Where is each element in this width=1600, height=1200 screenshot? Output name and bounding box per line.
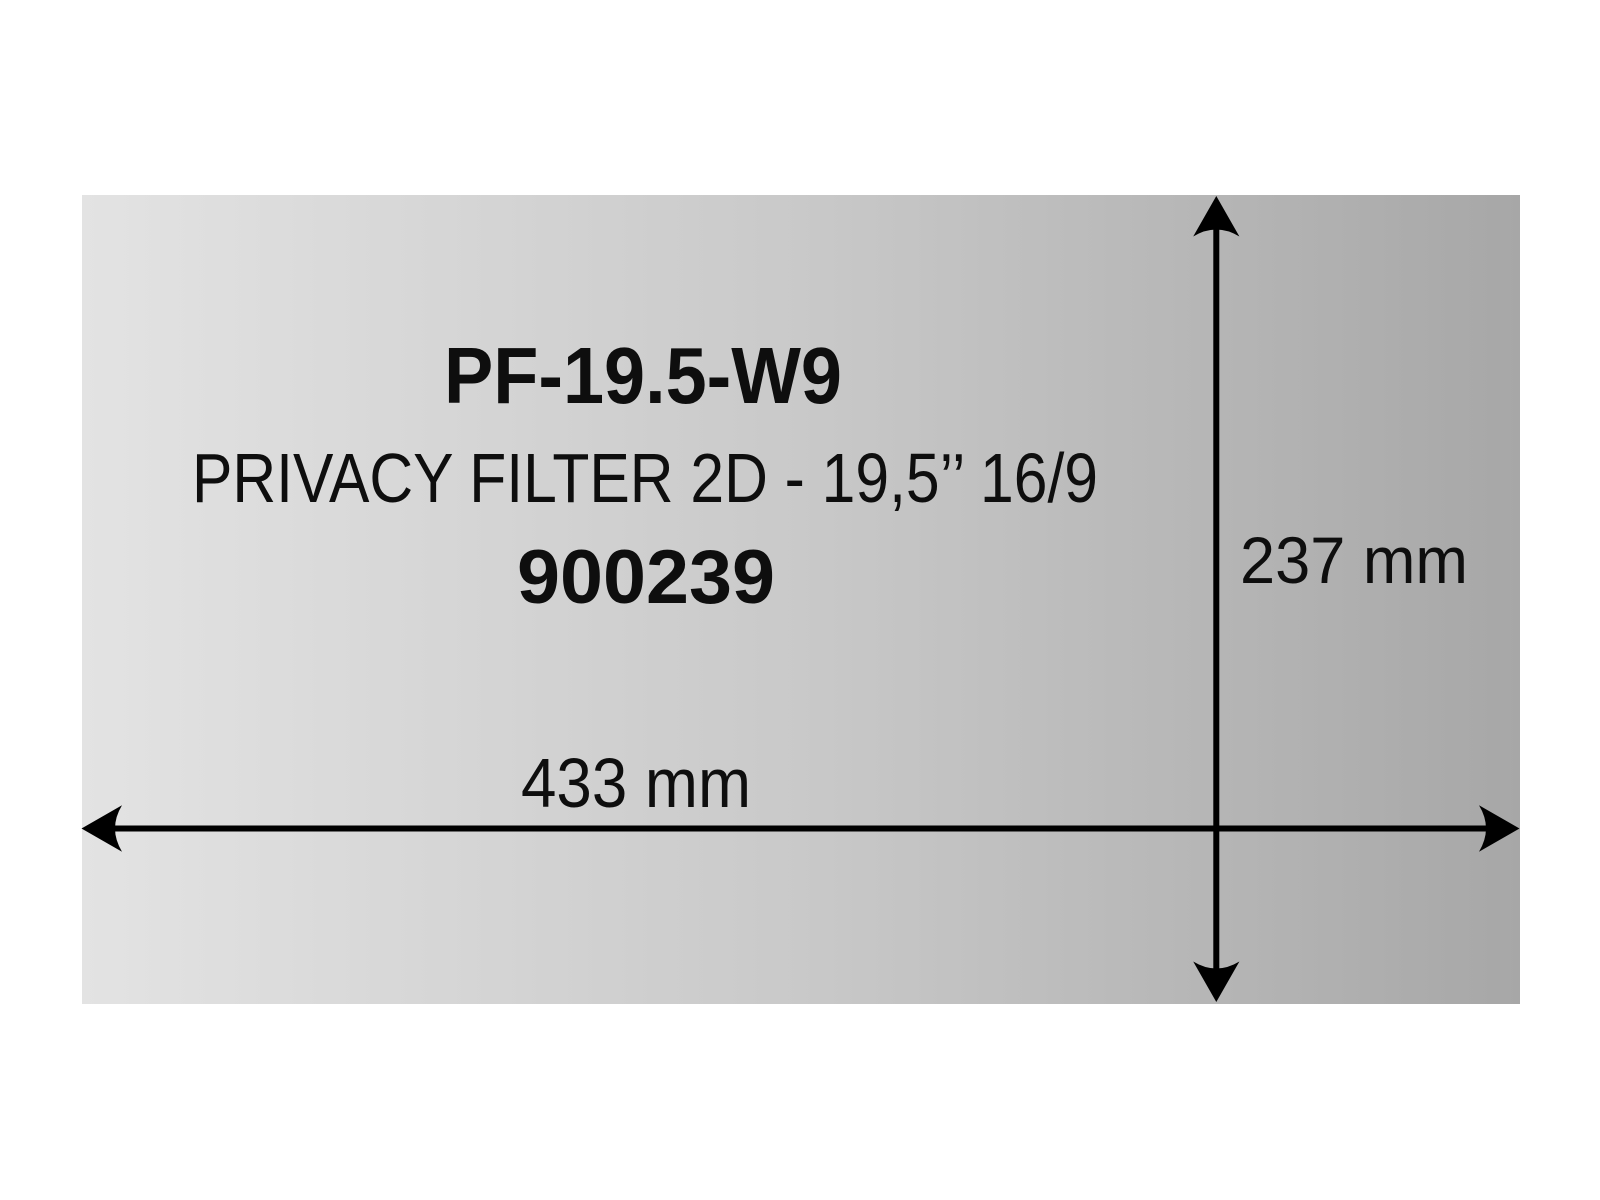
svg-text:237 mm: 237 mm (1240, 523, 1468, 597)
svg-text:433 mm: 433 mm (521, 744, 751, 822)
svg-text:PF-19.5-W9: PF-19.5-W9 (444, 331, 842, 420)
svg-text:PRIVACY FILTER 2D - 19,5’’ 16/: PRIVACY FILTER 2D - 19,5’’ 16/9 (192, 439, 1098, 517)
svg-text:900239: 900239 (517, 535, 775, 620)
